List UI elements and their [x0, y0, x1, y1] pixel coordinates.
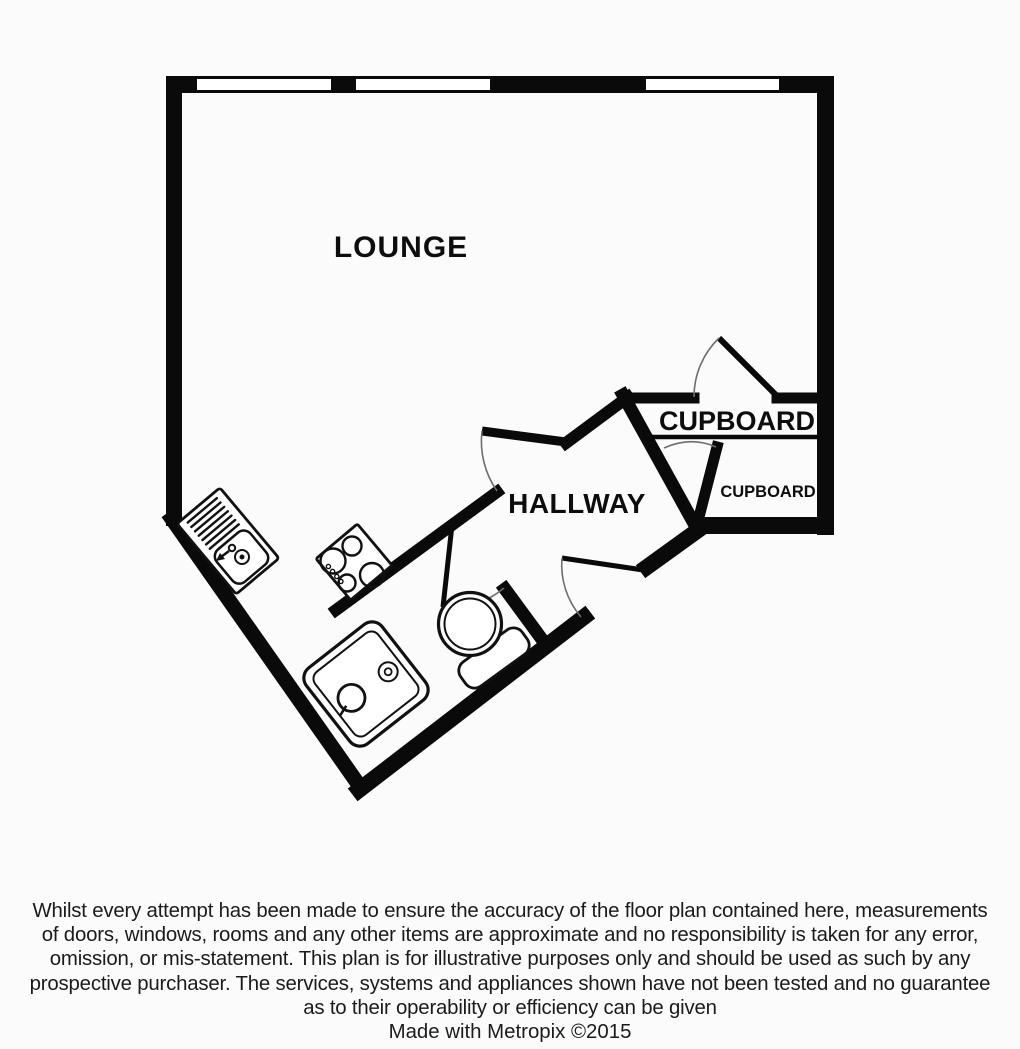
window-1 [196, 78, 332, 91]
room-label-cupboard-small: CUPBOARD [720, 483, 815, 501]
door-arc [481, 431, 497, 491]
wall-right [817, 76, 834, 535]
door-leaf [719, 338, 777, 396]
window-3 [645, 78, 780, 91]
door-leaf [562, 558, 643, 570]
room-labels: LOUNGE HALLWAY CUPBOARD CUPBOARD [334, 231, 816, 519]
metropix-credit: Made with Metropix ©2015 [0, 1020, 1020, 1044]
toilet-bowl-outer [439, 593, 502, 656]
door-arc [562, 558, 581, 617]
disclaimer-text: Whilst every attempt has been made to en… [0, 899, 1020, 1020]
wall-lounge-door-jamb [566, 397, 628, 443]
room-label-lounge: LOUNGE [334, 231, 468, 264]
disclaimer-line-4: prospective purchaser. The services, sys… [0, 972, 1020, 996]
wall-cupboard-west-diagonal [698, 447, 717, 521]
floor-plan: LOUNGE HALLWAY CUPBOARD CUPBOARD [0, 0, 1020, 880]
hob-icon [316, 524, 392, 600]
window-2 [355, 78, 491, 91]
door-arc [664, 442, 716, 448]
door-cupboard-small [664, 442, 716, 448]
door-front-entrance [562, 558, 643, 617]
door-lounge-hallway [481, 431, 566, 491]
disclaimer-line-2: of doors, windows, rooms and any other i… [0, 923, 1020, 947]
doors [443, 338, 777, 617]
disclaimer-line-5: as to their operability or efficiency ca… [0, 996, 1020, 1020]
wall-left [166, 76, 182, 526]
sink-drain-center [240, 555, 245, 560]
room-label-hallway: HALLWAY [508, 488, 646, 519]
disclaimer-line-1: Whilst every attempt has been made to en… [0, 899, 1020, 923]
exterior-walls [166, 76, 834, 535]
wall-cupboard-bottom [695, 517, 834, 534]
windows [196, 78, 780, 91]
fixtures [177, 488, 534, 752]
room-label-cupboard-large: CUPBOARD [659, 406, 815, 436]
disclaimer-line-3: omission, or mis-statement. This plan is… [0, 947, 1020, 971]
door-arc [694, 338, 719, 397]
kitchen-sink-icon [177, 488, 279, 594]
door-leaf [482, 431, 566, 442]
door-cupboard-large [694, 338, 777, 397]
